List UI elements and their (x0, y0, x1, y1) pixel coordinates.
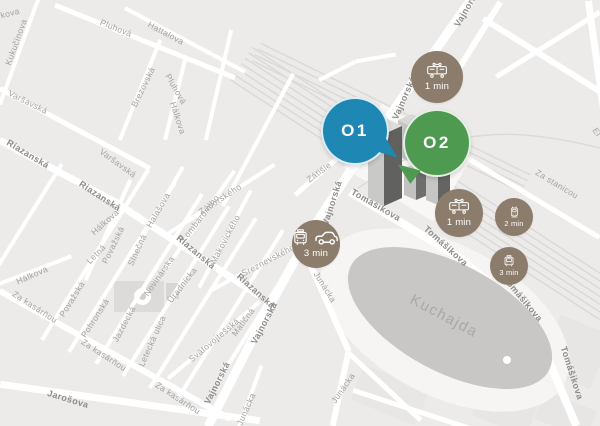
transit-marker[interactable]: 2 min (495, 198, 533, 236)
bus-front-icon (292, 229, 309, 246)
city-map: Kuchajda kovaKukučínovaPluhováHattalovaB… (0, 0, 600, 426)
transit-time: 1 min (425, 81, 449, 92)
transit-time: 3 min (304, 248, 328, 259)
bus-front-icon (503, 255, 515, 267)
marker-icons (426, 62, 448, 79)
transit-marker[interactable]: 1 min (435, 189, 483, 237)
transit-marker[interactable]: 3 min (292, 220, 340, 268)
transit-time: 1 min (447, 217, 471, 228)
tram-side-icon (448, 198, 470, 215)
marker-icons (503, 255, 515, 267)
marker-icons (509, 206, 520, 218)
train-front-icon (509, 206, 520, 218)
transit-marker[interactable]: 1 min (411, 51, 463, 103)
transit-time: 2 min (504, 219, 523, 228)
tram-side-icon (426, 62, 448, 79)
marker-icons (292, 229, 340, 246)
transit-marker[interactable]: 3 min (490, 247, 528, 285)
car-side-icon (313, 229, 340, 246)
markers-layer: 1 min1 min2 min3 min3 min (0, 0, 600, 426)
transit-time: 3 min (499, 268, 518, 277)
marker-icons (448, 198, 470, 215)
